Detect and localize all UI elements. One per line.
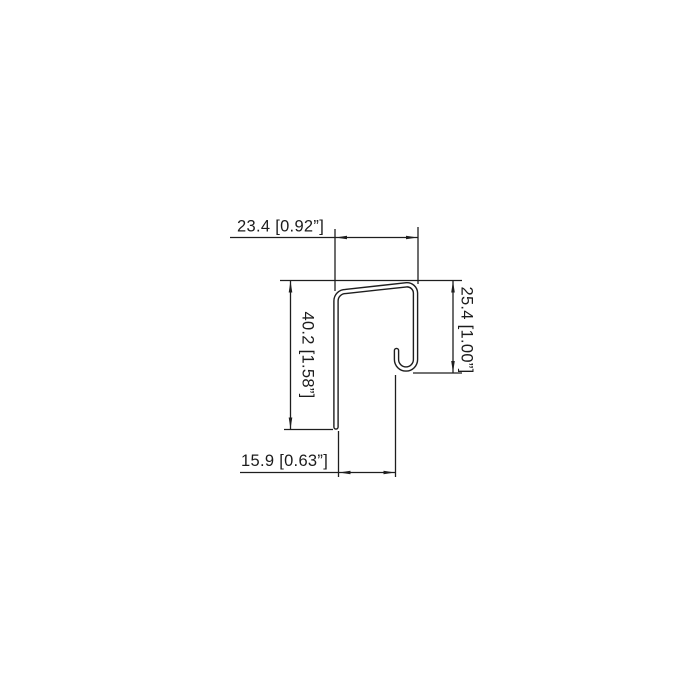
profile-wall-outline bbox=[336, 285, 416, 427]
dimension-left-height: 40.2 [1.58”] bbox=[280, 281, 462, 430]
arrow-down-icon bbox=[451, 361, 455, 373]
top-width-label: 23.4 [0.92”] bbox=[237, 218, 324, 236]
dimension-right-height: 25.4 [1.00”] bbox=[413, 281, 476, 374]
arrow-right-icon bbox=[384, 471, 396, 475]
technical-drawing-page: 23.4 [0.92”] 40.2 [1.58”] 25.4 [1.00”] bbox=[0, 0, 700, 700]
arrow-up-icon bbox=[451, 281, 455, 293]
arrow-up-icon bbox=[289, 281, 293, 293]
right-height-label: 25.4 [1.00”] bbox=[458, 286, 476, 373]
profile-cross-section bbox=[336, 285, 416, 427]
drawing-canvas: 23.4 [0.92”] 40.2 [1.58”] 25.4 [1.00”] bbox=[0, 0, 700, 700]
arrow-down-icon bbox=[289, 418, 293, 430]
bottom-width-label: 15.9 [0.63”] bbox=[241, 452, 328, 470]
profile-wall-core bbox=[336, 285, 416, 427]
arrow-left-icon bbox=[336, 236, 348, 240]
arrow-left-icon bbox=[339, 471, 351, 475]
arrow-right-icon bbox=[406, 236, 418, 240]
left-height-label: 40.2 [1.58”] bbox=[299, 311, 317, 398]
dimension-bottom-width: 15.9 [0.63”] bbox=[240, 375, 396, 477]
